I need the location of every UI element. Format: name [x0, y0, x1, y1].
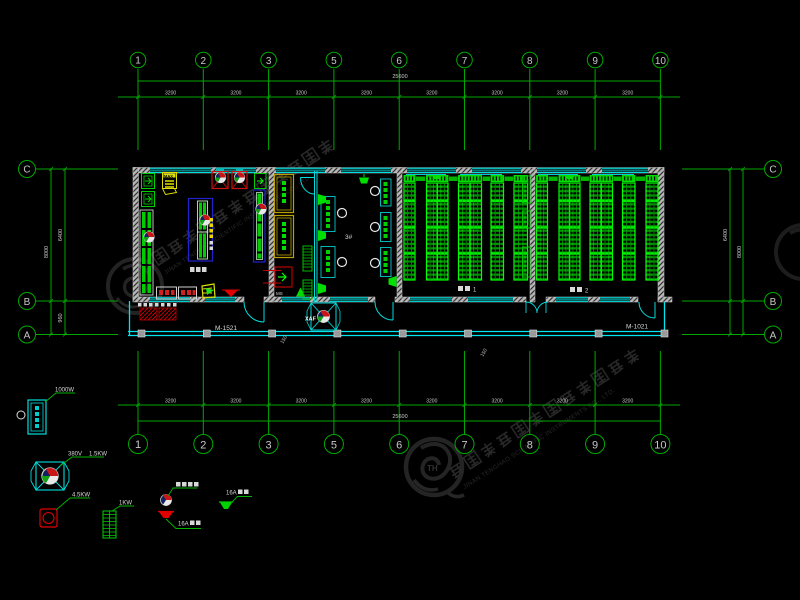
svg-text:6: 6 [396, 440, 402, 452]
svg-text:B: B [770, 297, 777, 308]
svg-text:10: 10 [655, 56, 667, 67]
svg-text:9: 9 [592, 440, 598, 452]
svg-text:1.5KW: 1.5KW [89, 452, 107, 458]
svg-text:MS: MS [276, 291, 283, 296]
svg-text:3200: 3200 [492, 91, 503, 97]
svg-text:3200: 3200 [492, 399, 503, 405]
svg-text:3#: 3# [345, 234, 353, 241]
svg-text:TH: TH [427, 464, 438, 473]
svg-text:7: 7 [462, 56, 468, 67]
svg-text:8000: 8000 [737, 246, 743, 258]
svg-text:8: 8 [527, 56, 533, 67]
svg-text:3200: 3200 [165, 91, 176, 97]
svg-text:8000: 8000 [44, 246, 50, 258]
svg-text:16A: 16A [178, 522, 189, 528]
svg-text:A: A [24, 331, 31, 342]
svg-text:1: 1 [135, 439, 141, 451]
svg-text:C: C [23, 165, 30, 176]
svg-text:3200: 3200 [622, 399, 633, 405]
svg-text:1: 1 [135, 56, 141, 67]
svg-text:10: 10 [654, 440, 666, 452]
svg-text:A: A [770, 331, 777, 342]
svg-text:6400: 6400 [58, 229, 64, 241]
svg-text:3200: 3200 [622, 91, 633, 97]
svg-text:1000W: 1000W [55, 388, 74, 394]
svg-text:3200: 3200 [557, 91, 568, 97]
svg-text:3200: 3200 [426, 91, 437, 97]
svg-text:3: 3 [266, 440, 272, 452]
svg-text:3200: 3200 [296, 91, 307, 97]
svg-text:3200: 3200 [361, 399, 372, 405]
svg-text:9: 9 [592, 56, 598, 67]
svg-text:3200: 3200 [557, 399, 568, 405]
svg-text:960: 960 [58, 313, 64, 322]
svg-text:MAX: MAX [164, 174, 173, 179]
svg-text:M-1021: M-1021 [626, 324, 648, 331]
svg-text:3200: 3200 [230, 91, 241, 97]
svg-text:XAF: XAF [305, 317, 317, 323]
svg-text:5: 5 [331, 440, 337, 452]
svg-text:25600: 25600 [392, 74, 407, 80]
svg-text:380V: 380V [68, 452, 82, 458]
svg-text:6400: 6400 [723, 229, 729, 241]
svg-text:3200: 3200 [165, 399, 176, 405]
svg-text:6: 6 [396, 56, 402, 67]
svg-text:4.5KW: 4.5KW [72, 493, 90, 499]
svg-text:3: 3 [266, 56, 272, 67]
svg-text:3200: 3200 [296, 399, 307, 405]
svg-text:3200: 3200 [361, 91, 372, 97]
svg-text:2: 2 [200, 440, 206, 452]
svg-text:25600: 25600 [392, 414, 407, 420]
svg-text:3200: 3200 [230, 399, 241, 405]
svg-text:C: C [769, 165, 776, 176]
svg-text:8: 8 [527, 440, 533, 452]
svg-text:5: 5 [331, 56, 337, 67]
svg-text:16A: 16A [226, 491, 237, 497]
svg-text:B: B [24, 297, 31, 308]
svg-text:3200: 3200 [426, 399, 437, 405]
svg-text:M-1521: M-1521 [215, 325, 237, 332]
svg-text:7: 7 [461, 440, 467, 452]
svg-text:2: 2 [201, 56, 207, 67]
svg-text:1KW: 1KW [119, 501, 132, 507]
